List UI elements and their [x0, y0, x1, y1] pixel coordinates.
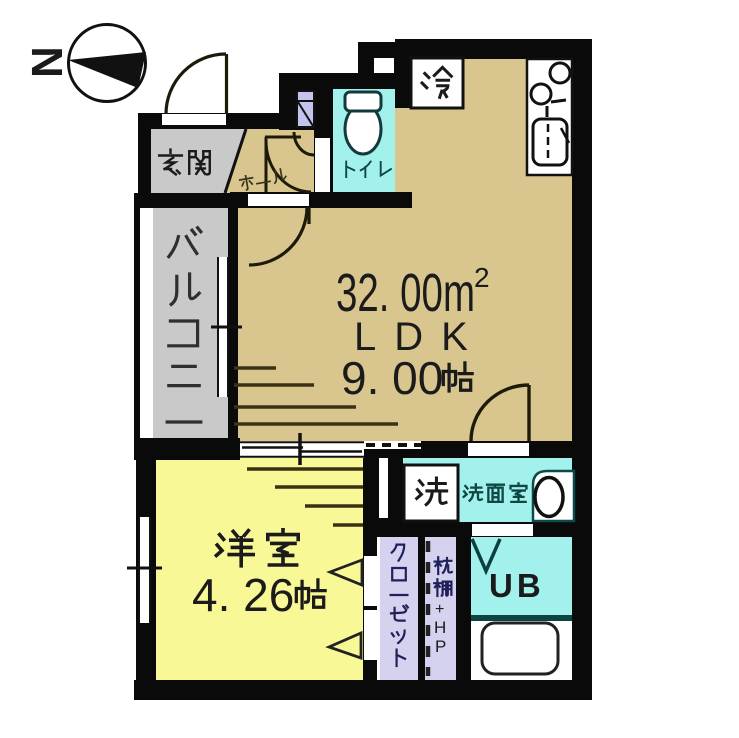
svg-text:32. 00m: 32. 00m	[336, 263, 475, 323]
svg-text:4. 26: 4. 26	[192, 569, 294, 621]
svg-text:H: H	[434, 618, 446, 637]
svg-text:9. 00: 9. 00	[341, 352, 443, 404]
svg-text:UB: UB	[489, 567, 545, 604]
svg-text:N: N	[23, 46, 72, 78]
svg-text:2: 2	[474, 262, 490, 293]
svg-text:P: P	[435, 637, 446, 656]
svg-text:+: +	[435, 601, 444, 618]
